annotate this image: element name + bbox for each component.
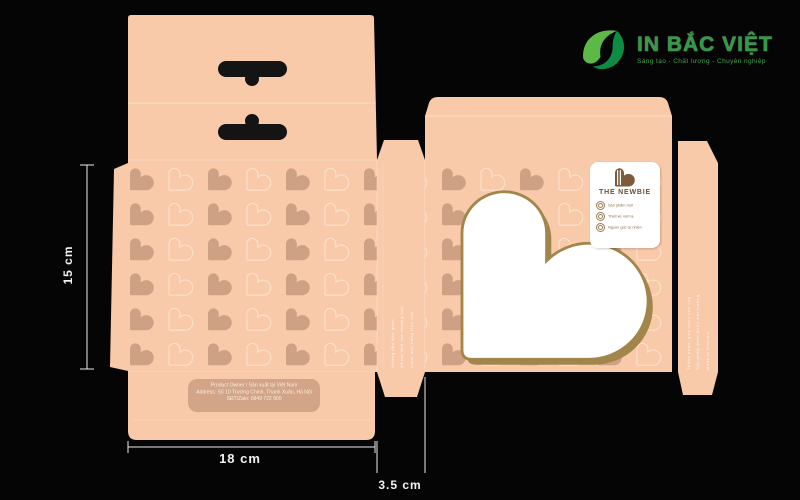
- front-lid-panel: [425, 97, 672, 162]
- left-glue-flap: [110, 163, 128, 371]
- badge-icon: [596, 201, 605, 210]
- right-bottom-flap: [678, 372, 718, 395]
- card-brand-name: THE NEWBIE: [599, 189, 651, 196]
- brand-logo: IN BẮC VIỆT Sáng tạo - Chất lượng - Chuy…: [578, 24, 773, 76]
- dimension-depth-label: 3.5 cm: [368, 478, 432, 492]
- side-panel-text: Thành phần: giấy ivory cao cấp Sản phẩm …: [680, 168, 716, 370]
- right-top-flap: [678, 141, 718, 163]
- mid-top-flap: [377, 140, 425, 160]
- packaging-dieline-canvas: IN BẮC VIỆT Sáng tạo - Chất lượng - Chuy…: [0, 0, 800, 500]
- card-feature-row: Thiết kế mới lạ: [596, 211, 654, 222]
- badge-icon: [596, 223, 605, 232]
- card-feature-row: Sản phẩm mới: [596, 200, 654, 211]
- manufacturer-address-box: Product Owner / Sản xuất tại Việt Nam Ad…: [188, 380, 320, 411]
- vertical-text-line: tránh ánh nắng trực tiếp: [409, 170, 415, 368]
- feature-text: Sản phẩm mới: [608, 203, 633, 207]
- vertical-text-line: để nơi khô ráo thoáng mát: [399, 170, 405, 368]
- vertical-text-line: Made in Vietnam: [705, 168, 711, 370]
- card-feature-row: Nguồn gốc tự nhiên: [596, 222, 654, 233]
- brand-name: IN BẮC VIỆT: [637, 34, 773, 55]
- card-feature-list: Sản phẩm mới Thiết kế mới lạ Nguồn gốc t…: [590, 200, 660, 233]
- dimension-width-label: 18 cm: [115, 451, 365, 466]
- dimension-height-label: 15 cm: [61, 237, 75, 293]
- feature-text: Thiết kế mới lạ: [608, 214, 633, 218]
- back-main-pattern: [128, 160, 377, 372]
- address-line: SĐT/Zalo: 0949 722 900: [188, 395, 320, 402]
- feature-text: Nguồn gốc tự nhiên: [608, 225, 642, 229]
- brand-tagline: Sáng tạo - Chất lượng - Chuyên nghiệp: [637, 59, 773, 66]
- leaf-swoosh-icon: [578, 24, 630, 76]
- address-line: Product Owner / Sản xuất tại Việt Nam: [188, 382, 320, 389]
- address-line: Address: Số 10 Trường Chinh, Thanh Xuân,…: [188, 388, 320, 395]
- heart-brand-icon: [615, 168, 635, 187]
- mid-bottom-flap: [377, 372, 425, 397]
- product-label-card: THE NEWBIE Sản phẩm mới Thiết kế mới lạ …: [590, 162, 660, 248]
- badge-icon: [596, 212, 605, 221]
- vertical-text-line: Thành phần: giấy ivory cao cấp: [686, 168, 692, 370]
- vertical-text-line: Hướng dẫn bảo quản: [390, 170, 396, 368]
- vertical-text-line: Sản phẩm thân thiện môi trường: [695, 168, 701, 370]
- glue-panel-text: Hướng dẫn bảo quản để nơi khô ráo thoáng…: [383, 170, 421, 368]
